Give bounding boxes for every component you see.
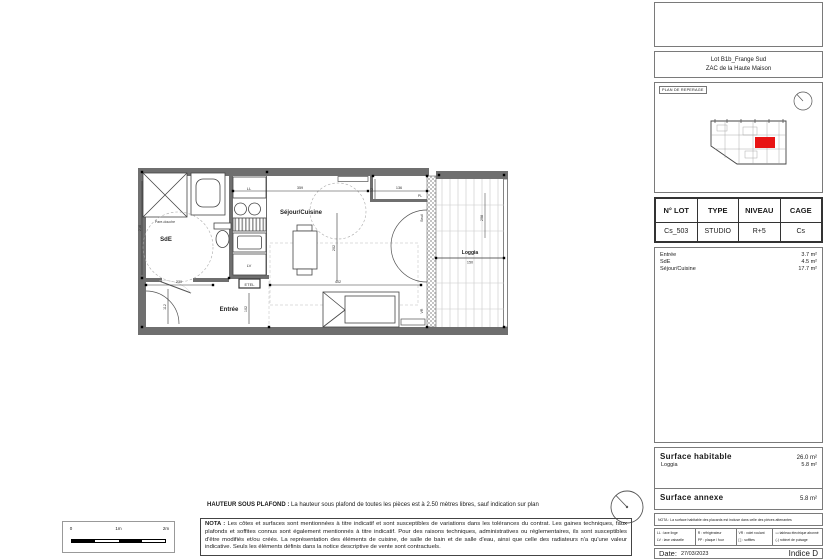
- location-plan-box: PLAN DE REPERAGE: [654, 82, 823, 193]
- project-line1: Lot B1b_Frange Sud: [655, 56, 822, 65]
- legend-col-4: ▭ tableau électrique abonné (-) robinet …: [773, 529, 822, 545]
- ceiling-height-note: HAUTEUR SOUS PLAFOND : La hauteur sous p…: [207, 502, 637, 508]
- legend-soffites: [ ] : soffites: [739, 538, 771, 544]
- surfaces-box: Surface habitable 26.0 m² Loggia 5.8 m² …: [654, 447, 823, 510]
- dim-sejour-h: 202: [332, 245, 336, 251]
- table-row: Cs_503 STUDIO R+5 Cs: [656, 222, 822, 241]
- sejour-label: Séjour/Cuisine: [280, 210, 323, 216]
- sofa-bed: [323, 292, 399, 327]
- scale-bar-segments: [71, 539, 166, 543]
- date-box: Date: 27/03/2023 Indice D: [654, 548, 823, 559]
- lot-table-header-nlot: N° LOT: [656, 199, 698, 223]
- lot-level: R+5: [739, 222, 781, 241]
- dishwasher-label: LV: [247, 263, 252, 268]
- project-title-box: Lot B1b_Frange Sud ZAC de la Haute Maiso…: [654, 51, 823, 78]
- drawing-sheet: Pare-douche SdE LL LV ETEL Séjour/Cuisin…: [0, 0, 840, 560]
- lot-number: Cs_503: [656, 222, 698, 241]
- legend-col-1: LL : lave linge LV : lave vaisselle: [655, 529, 696, 545]
- radiator: [338, 177, 368, 182]
- list-item: Séjour/Cuisine 17.7 m²: [660, 266, 817, 273]
- nota-box: NOTA : Les côtes et surfaces sont mentio…: [200, 518, 632, 556]
- lot-table-header-type: TYPE: [697, 199, 739, 223]
- unit-location-marker: [755, 137, 775, 148]
- ceiling-height-text: La hauteur sous plafond de toutes les pi…: [291, 502, 539, 508]
- sde-turning-circle: [143, 212, 213, 282]
- dim-sejour-w: 402: [335, 280, 341, 284]
- title-block-panel: Lot B1b_Frange Sud ZAC de la Haute Maiso…: [654, 0, 823, 560]
- surface-habitable-value: 26.0 m²: [797, 455, 817, 461]
- dim-notch: 52: [370, 188, 374, 192]
- dim-sde-h: 216: [138, 225, 142, 231]
- scale-tick-0: 0: [70, 526, 73, 531]
- glazed-wall: [427, 176, 436, 327]
- lot-table-header-cage: CAGE: [780, 199, 822, 223]
- pl-label: PL: [418, 194, 422, 198]
- nota-label: NOTA :: [205, 521, 225, 527]
- list-item: SdE 4.5 m²: [660, 259, 817, 266]
- surface-annexe-value: 5.8 m²: [800, 496, 817, 502]
- lot-cage: Cs: [780, 222, 822, 241]
- dim-entree-h2: 102: [244, 306, 248, 312]
- loggia-railing: [504, 179, 508, 327]
- shower: [143, 173, 187, 217]
- area-value-sde: 4.5 m²: [801, 259, 817, 266]
- dim-top-right: 136: [396, 186, 402, 190]
- project-line2: ZAC de la Haute Maison: [655, 65, 822, 74]
- area-value-entree: 3.7 m²: [801, 252, 817, 259]
- washing-machine-label: LL: [247, 186, 252, 191]
- area-name-entree: Entrée: [660, 252, 676, 259]
- sde-label: SdE: [160, 237, 172, 243]
- legend-lv: LV : lave vaisselle: [657, 538, 693, 544]
- dim-entree-w: 230: [176, 280, 182, 284]
- date-value: 27/03/2023: [681, 551, 789, 557]
- surface-habitable-label: Surface habitable: [660, 452, 732, 461]
- dining-table: [293, 225, 317, 275]
- surface-loggia-value: 5.8 m²: [801, 462, 817, 468]
- surface-habitable-section: Surface habitable 26.0 m² Loggia 5.8 m²: [655, 448, 822, 489]
- legend-col-3: VR : volet roulant [ ] : soffites: [737, 529, 774, 545]
- dim-entree-h: 112: [163, 304, 167, 310]
- legend-col-2: R : réfrigérateur PP : plaque / four: [696, 529, 737, 545]
- area-value-sejour: 17.7 m²: [798, 266, 817, 273]
- lot-table: N° LOT TYPE NIVEAU CAGE Cs_503 STUDIO R+…: [655, 198, 822, 242]
- legend-pp: PP : plaque / four: [698, 538, 734, 544]
- location-minimap: [655, 83, 824, 194]
- logo-placeholder-box: [654, 2, 823, 47]
- scale-tick-1m: 1m: [115, 526, 121, 531]
- legend-vr: VR : volet roulant: [739, 531, 771, 537]
- legend-r: R : réfrigérateur: [698, 531, 734, 537]
- surface-annexe-section: Surface annexe 5.8 m²: [655, 489, 822, 509]
- panel-nota: NOTA : La surface habitable des placards…: [654, 513, 823, 526]
- lot-table-box: N° LOT TYPE NIVEAU CAGE Cs_503 STUDIO R+…: [654, 197, 823, 243]
- pare-douche-label: Pare-douche: [155, 220, 175, 224]
- legend-tableau: ▭ tableau électrique abonné: [775, 531, 820, 537]
- lot-type: STUDIO: [697, 222, 739, 241]
- list-item: Entrée 3.7 m²: [660, 252, 817, 259]
- shelf: [401, 319, 425, 325]
- panel-nota-text: NOTA : La surface habitable des placards…: [658, 518, 792, 522]
- revision-indice: Indice D: [789, 549, 818, 558]
- ceiling-height-label: HAUTEUR SOUS PLAFOND :: [207, 502, 289, 508]
- room-areas-box: Entrée 3.7 m² SdE 4.5 m² Séjour/Cuisine …: [654, 247, 823, 443]
- loggia-label: Loggia: [462, 250, 479, 256]
- legend-box: LL : lave linge LV : lave vaisselle R : …: [654, 528, 823, 546]
- legend-ll: LL : lave linge: [657, 531, 693, 537]
- floor-plan: Pare-douche SdE LL LV ETEL Séjour/Cuisin…: [133, 163, 518, 348]
- lot-table-header-niveau: NIVEAU: [739, 199, 781, 223]
- scale-tick-2m: 2m: [163, 526, 169, 531]
- scale-bar: 0 1m 2m: [62, 521, 175, 553]
- vr-label: VR: [420, 308, 424, 313]
- dim-top-main: 359: [297, 186, 303, 190]
- area-name-sejour: Séjour/Cuisine: [660, 266, 696, 273]
- surface-loggia-label: Loggia: [661, 462, 678, 468]
- seuil-label: Seuil: [420, 214, 424, 222]
- washbasin: [191, 173, 225, 215]
- dim-loggia-w: 150: [467, 261, 473, 265]
- scale-ticks: 0 1m 2m: [71, 526, 166, 538]
- area-name-sde: SdE: [660, 259, 670, 266]
- date-label: Date:: [659, 549, 677, 558]
- toilet: [214, 223, 231, 248]
- entree-label: Entrée: [220, 307, 239, 313]
- nota-text: Les côtes et surfaces sont mentionnées à…: [205, 521, 627, 550]
- etel-label: ETEL: [244, 282, 255, 287]
- legend-robinet: (-) robinet de puisage: [775, 538, 820, 544]
- dim-loggia-h: 298: [480, 215, 484, 221]
- surface-annexe-label: Surface annexe: [660, 493, 723, 502]
